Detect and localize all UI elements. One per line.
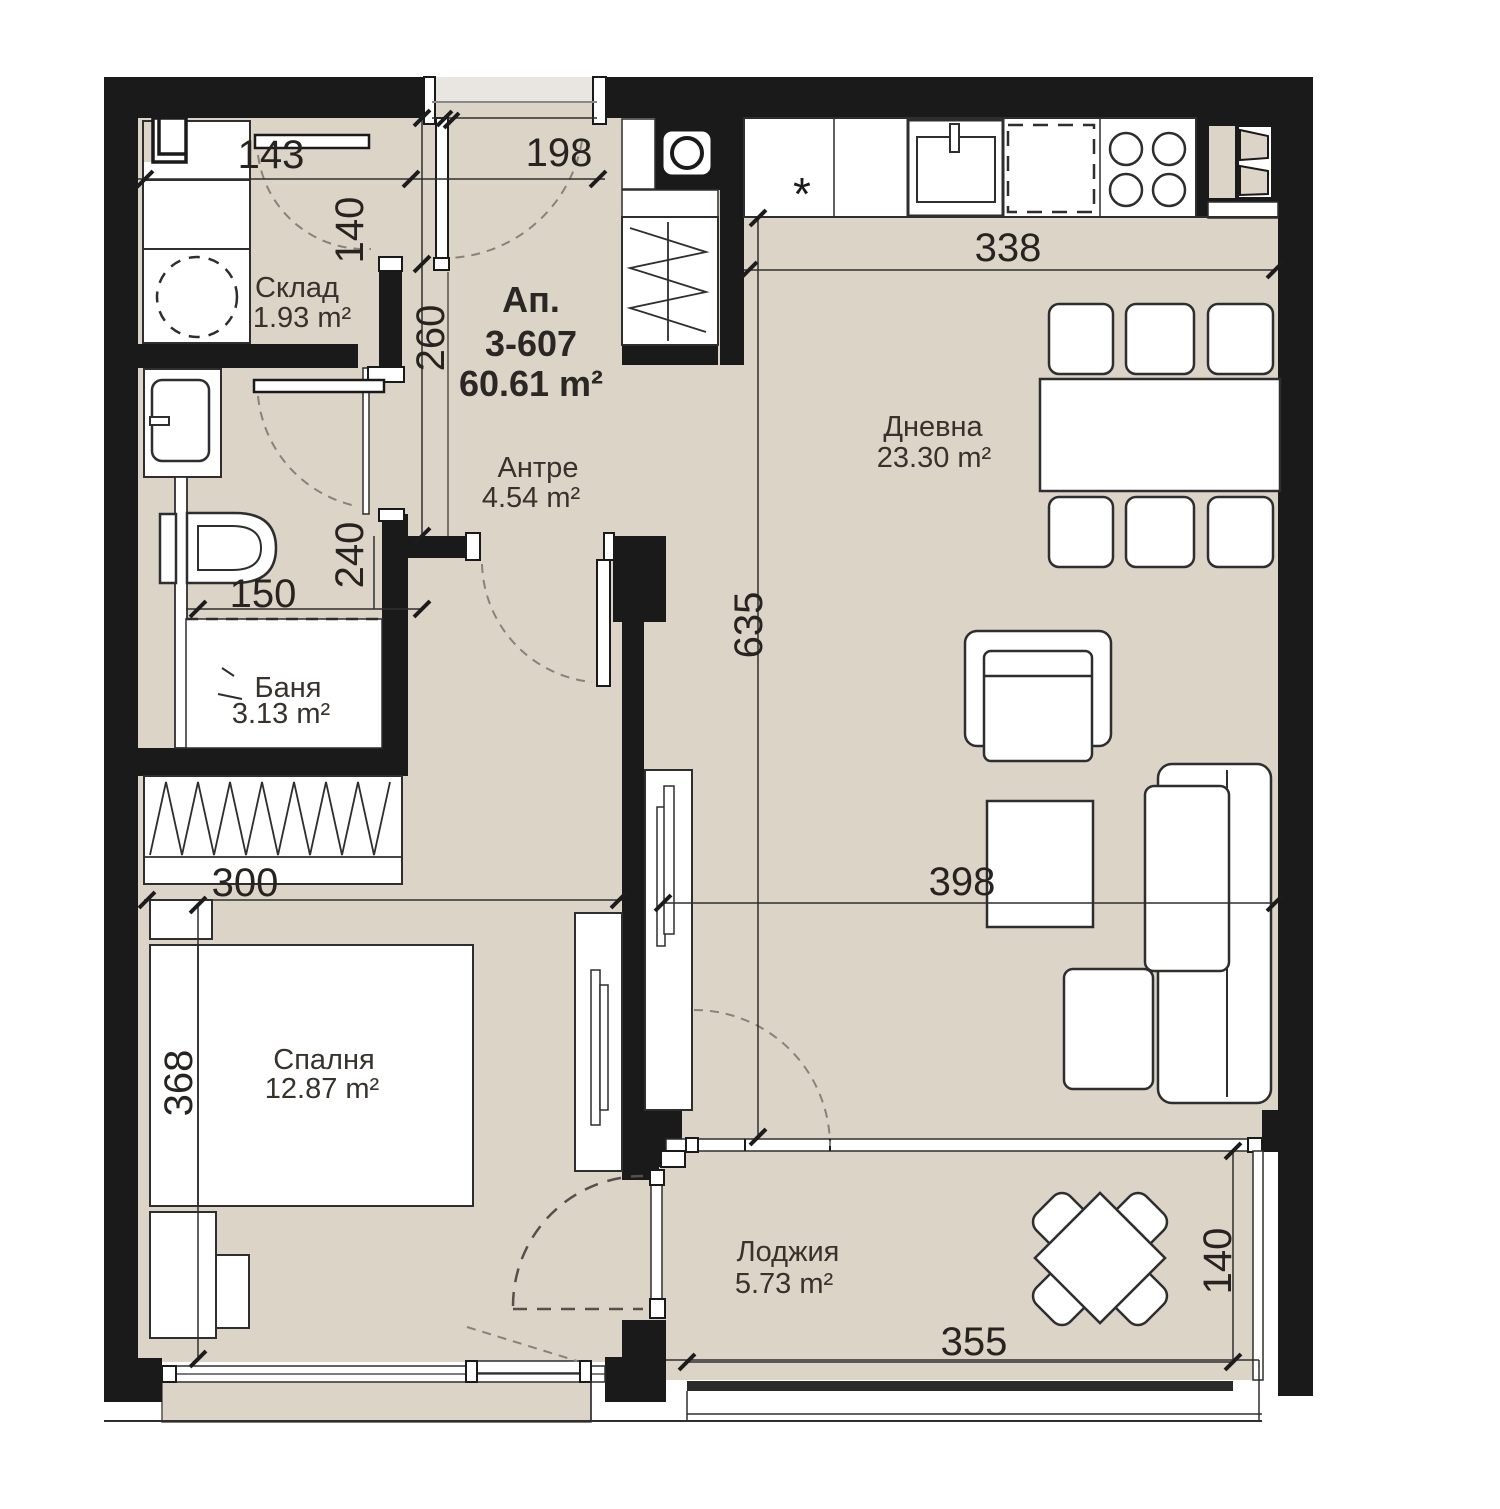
svg-text:3.13 m²: 3.13 m² (232, 698, 331, 730)
svg-text:Ап.: Ап. (502, 279, 560, 320)
svg-text:3-607: 3-607 (485, 323, 577, 364)
svg-text:Дневна: Дневна (883, 411, 983, 443)
svg-text:143: 143 (238, 133, 305, 177)
svg-text:338: 338 (975, 226, 1042, 270)
svg-text:140: 140 (1196, 1228, 1240, 1295)
svg-text:398: 398 (929, 860, 996, 904)
svg-text:300: 300 (212, 861, 279, 905)
svg-text:60.61 m²: 60.61 m² (459, 363, 603, 404)
svg-text:Лоджия: Лоджия (737, 1236, 840, 1268)
svg-text:23.30 m²: 23.30 m² (877, 442, 992, 474)
svg-text:635: 635 (727, 592, 771, 659)
svg-text:4.54 m²: 4.54 m² (482, 482, 581, 514)
svg-text:5.73 m²: 5.73 m² (735, 1268, 834, 1300)
svg-text:Спалня: Спалня (273, 1044, 374, 1076)
svg-text:Антре: Антре (498, 452, 579, 484)
svg-text:140: 140 (328, 197, 372, 264)
svg-text:260: 260 (409, 305, 453, 372)
svg-text:368: 368 (157, 1050, 201, 1117)
svg-text:198: 198 (526, 131, 593, 175)
svg-text:355: 355 (941, 1320, 1008, 1364)
svg-text:240: 240 (328, 522, 372, 589)
svg-text:*: * (793, 168, 811, 220)
svg-text:Склад: Склад (255, 272, 339, 304)
svg-text:150: 150 (230, 572, 297, 616)
svg-text:1.93 m²: 1.93 m² (253, 302, 352, 334)
svg-text:12.87 m²: 12.87 m² (265, 1073, 380, 1105)
